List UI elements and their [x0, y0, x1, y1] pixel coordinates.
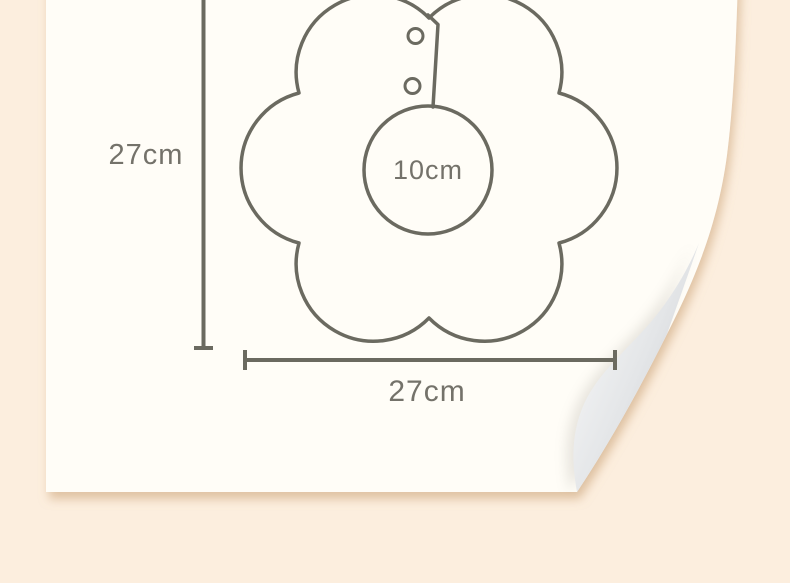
width-dimension-label: 27cm: [388, 377, 465, 407]
bib-diagram-graphic: [0, 0, 790, 583]
neck-dimension-label: 10cm: [393, 157, 463, 184]
product-size-diagram: 27cm 10cm 27cm: [0, 0, 790, 583]
paper-card: [46, 0, 738, 492]
height-dimension-label: 27cm: [109, 141, 184, 170]
